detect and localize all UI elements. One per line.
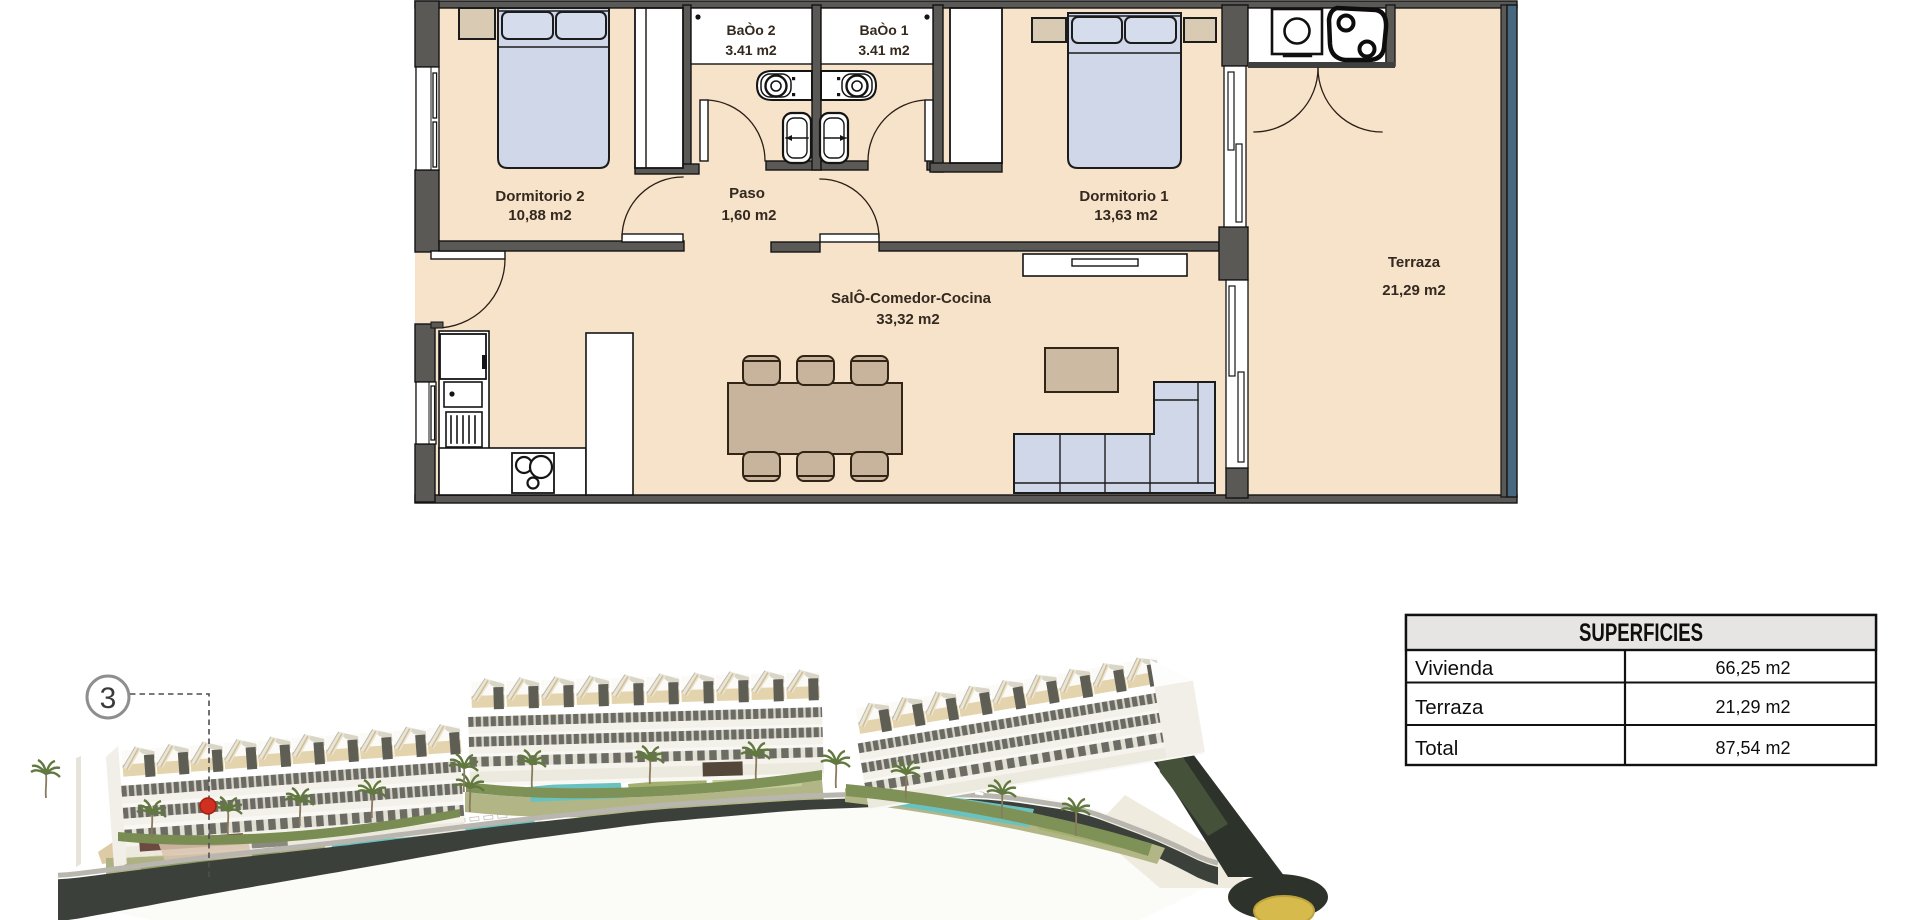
svg-text:3.41 m2: 3.41 m2 bbox=[858, 42, 910, 58]
svg-text:21,29 m2: 21,29 m2 bbox=[1715, 697, 1790, 717]
svg-text:1,60 m2: 1,60 m2 bbox=[721, 207, 776, 224]
svg-text:13,63 m2: 13,63 m2 bbox=[1094, 207, 1157, 224]
svg-text:Terraza: Terraza bbox=[1415, 696, 1484, 719]
svg-text:10,88 m2: 10,88 m2 bbox=[508, 207, 571, 224]
svg-text:BaÒo 1: BaÒo 1 bbox=[859, 21, 908, 38]
svg-text:SalÔ-Comedor-Cocina: SalÔ-Comedor-Cocina bbox=[831, 289, 992, 307]
svg-text:3: 3 bbox=[100, 682, 117, 715]
svg-text:Vivienda: Vivienda bbox=[1415, 657, 1494, 680]
svg-text:SUPERFICIES: SUPERFICIES bbox=[1579, 619, 1703, 647]
svg-text:Dormitorio 1: Dormitorio 1 bbox=[1079, 188, 1168, 205]
svg-text:Paso: Paso bbox=[729, 185, 765, 202]
svg-text:33,32 m2: 33,32 m2 bbox=[876, 311, 939, 328]
svg-text:3.41 m2: 3.41 m2 bbox=[725, 42, 777, 58]
svg-text:Total: Total bbox=[1415, 737, 1458, 760]
svg-text:BaÒo 2: BaÒo 2 bbox=[726, 21, 775, 38]
svg-text:21,29 m2: 21,29 m2 bbox=[1382, 282, 1445, 299]
svg-text:Dormitorio 2: Dormitorio 2 bbox=[495, 188, 584, 205]
svg-text:66,25 m2: 66,25 m2 bbox=[1715, 658, 1790, 678]
svg-text:87,54 m2: 87,54 m2 bbox=[1715, 738, 1790, 758]
svg-text:Terraza: Terraza bbox=[1388, 254, 1441, 271]
